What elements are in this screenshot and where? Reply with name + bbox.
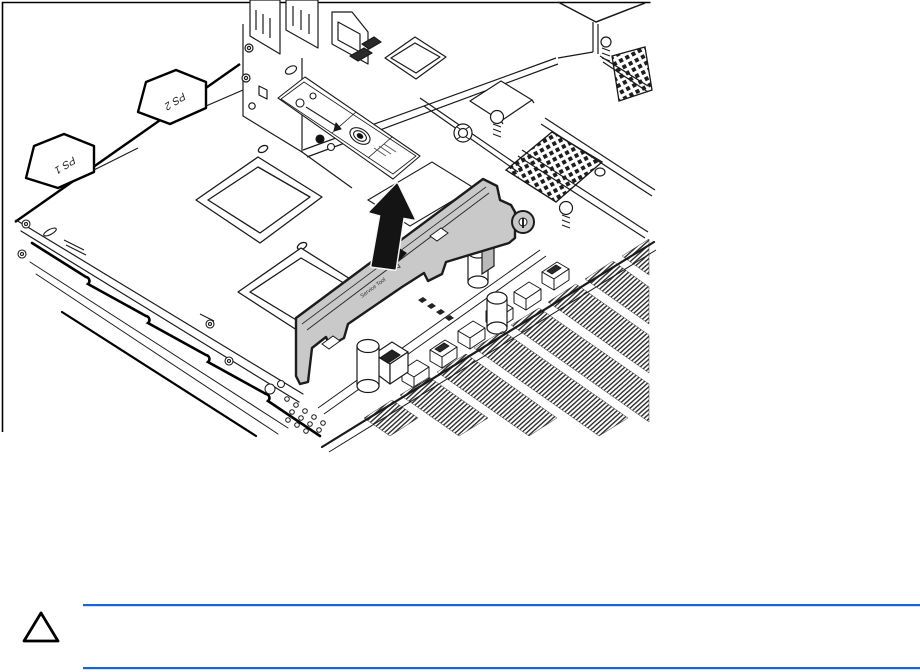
vent-holes: [265, 381, 325, 434]
cage-opening: [196, 144, 322, 251]
caution-rule-top: [83, 604, 920, 606]
caution-triangle-icon: [24, 613, 58, 641]
board-pads: [385, 37, 534, 142]
caution-rule-bottom: [83, 667, 920, 669]
thumbscrew-icon: [560, 202, 573, 215]
chassis-illustration: PS 1 PS 2: [0, 0, 920, 672]
service-label-plate: [278, 64, 420, 179]
cage-front-details: [18, 220, 233, 365]
aux-heatsink: [601, 37, 652, 101]
thumbscrew-icon: [491, 111, 504, 124]
document-page: PS 1 PS 2: [0, 0, 920, 672]
screw-icon: [601, 37, 611, 47]
cage-front: [16, 220, 320, 436]
